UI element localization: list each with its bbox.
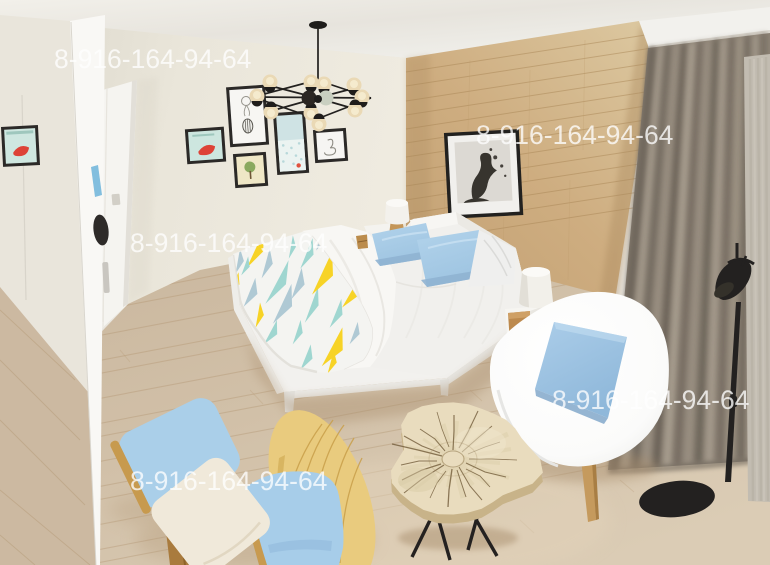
svg-text:8-916-164-94-64: 8-916-164-94-64 (130, 228, 327, 258)
svg-text:8-916-164-94-64: 8-916-164-94-64 (130, 466, 327, 496)
svg-text:8-916-164-94-64: 8-916-164-94-64 (476, 120, 673, 150)
svg-text:8-916-164-94-64: 8-916-164-94-64 (54, 44, 251, 74)
svg-text:8-916-164-94-64: 8-916-164-94-64 (552, 385, 749, 415)
